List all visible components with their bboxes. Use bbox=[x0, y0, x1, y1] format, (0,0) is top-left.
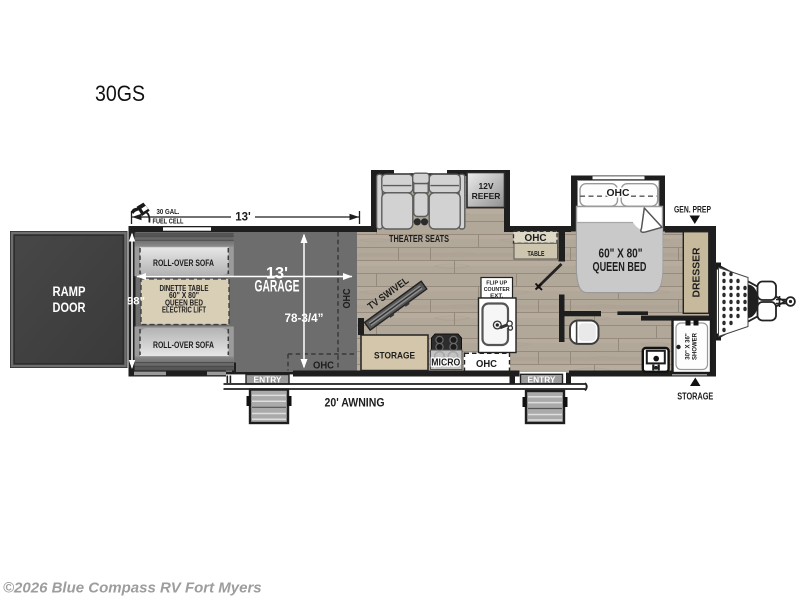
svg-text:78-3/4”: 78-3/4” bbox=[285, 313, 324, 325]
svg-text:ROLL-OVER SOFA: ROLL-OVER SOFA bbox=[153, 340, 214, 351]
svg-text:12V: 12V bbox=[478, 181, 493, 191]
svg-text:98": 98" bbox=[127, 296, 145, 308]
svg-text:GARAGE: GARAGE bbox=[255, 278, 300, 296]
svg-text:REFER: REFER bbox=[472, 191, 501, 201]
svg-text:RAMP: RAMP bbox=[53, 284, 86, 299]
svg-text:THEATER SEATS: THEATER SEATS bbox=[389, 233, 449, 245]
svg-text:OHC: OHC bbox=[525, 232, 547, 244]
svg-text:TABLE: TABLE bbox=[528, 249, 545, 258]
svg-text:QUEEN BED: QUEEN BED bbox=[593, 259, 647, 274]
svg-text:MICRO: MICRO bbox=[431, 358, 460, 369]
svg-text:20' AWNING: 20' AWNING bbox=[325, 396, 385, 410]
svg-text:FLIP UP: FLIP UP bbox=[486, 281, 507, 287]
svg-text:30GS: 30GS bbox=[95, 81, 145, 106]
svg-text:OHC: OHC bbox=[476, 359, 497, 370]
svg-text:©2026 Blue Compass RV Fort Mye: ©2026 Blue Compass RV Fort Myers bbox=[3, 580, 262, 597]
svg-text:13': 13' bbox=[235, 212, 251, 224]
svg-text:DOOR: DOOR bbox=[53, 300, 86, 315]
svg-text:30" X 36": 30" X 36" bbox=[686, 333, 692, 360]
svg-text:GEN. PREP: GEN. PREP bbox=[674, 205, 711, 216]
svg-text:STORAGE: STORAGE bbox=[677, 392, 713, 403]
svg-text:30 GAL.: 30 GAL. bbox=[157, 209, 180, 216]
svg-text:ENTRY: ENTRY bbox=[528, 374, 556, 384]
svg-text:SHOWER: SHOWER bbox=[693, 332, 699, 360]
svg-text:STORAGE: STORAGE bbox=[374, 351, 415, 362]
svg-text:COUNTER: COUNTER bbox=[484, 287, 511, 293]
svg-text:ENTRY: ENTRY bbox=[254, 375, 282, 385]
svg-text:DRESSER: DRESSER bbox=[691, 247, 703, 297]
svg-text:ELECTRIC LIFT: ELECTRIC LIFT bbox=[162, 306, 206, 315]
svg-text:FUEL CELL: FUEL CELL bbox=[153, 219, 185, 226]
svg-text:OHC: OHC bbox=[607, 187, 630, 199]
svg-text:OHC: OHC bbox=[313, 361, 334, 372]
svg-text:ROLL-OVER SOFA: ROLL-OVER SOFA bbox=[153, 258, 214, 269]
svg-text:OHC: OHC bbox=[342, 289, 353, 309]
